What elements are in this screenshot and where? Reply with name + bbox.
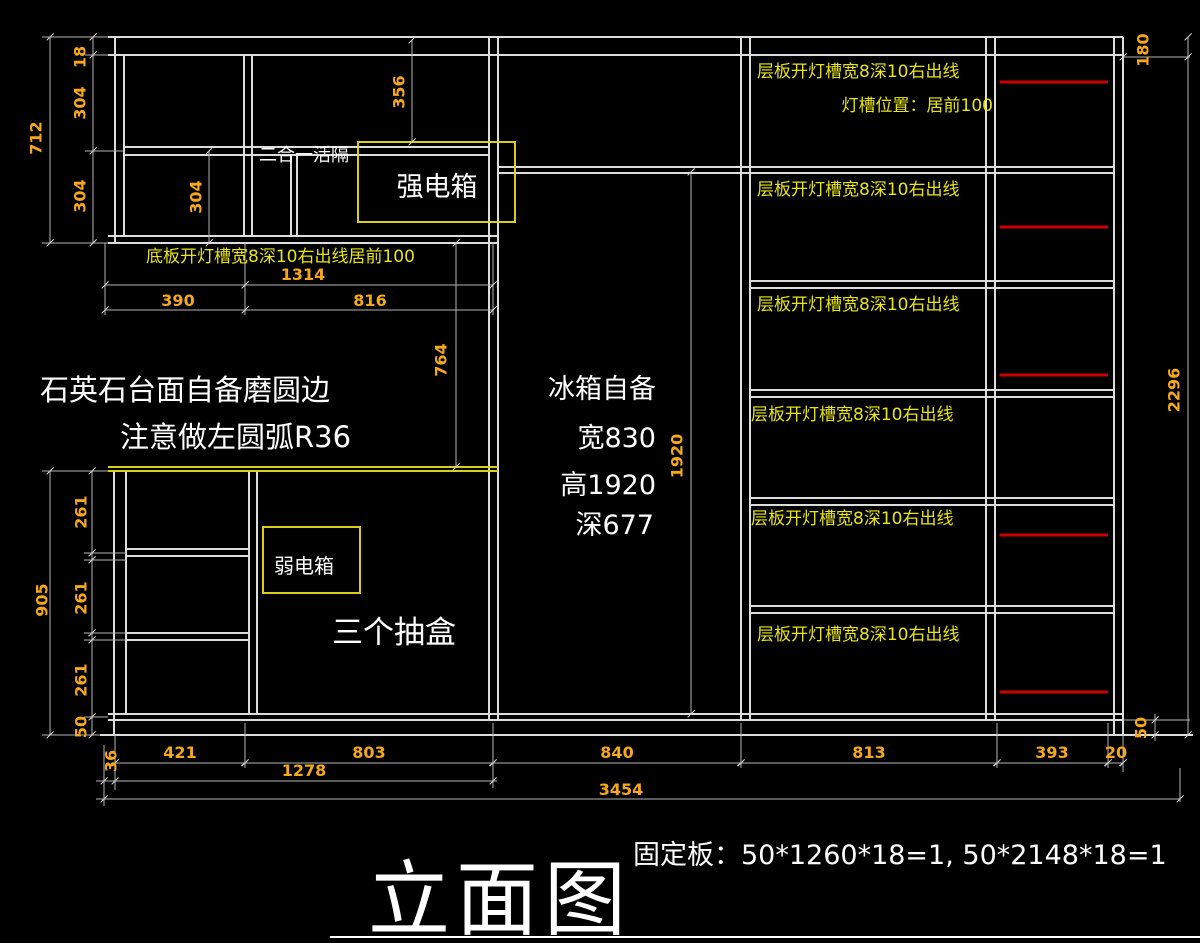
dimension-labels: 712 18 304 304 304 356 764 1920 905 261 … [27,33,1184,799]
shelf-light-note-6: 层板开灯槽宽8深10右出线 [757,625,959,645]
dim-304-c: 304 [187,180,206,213]
dim-840: 840 [600,743,633,762]
drawers-note: 三个抽盒 [332,615,456,651]
combo-divider-note: 二合一活隔 [259,145,349,166]
countertop-note-line1: 石英石台面自备磨圆边 [40,373,330,407]
shelf-light-note-1: 层板开灯槽宽8深10右出线 [757,62,959,82]
fridge-note-line1: 冰箱自备 [548,374,656,405]
cad-elevation-canvas: 712 18 304 304 304 356 764 1920 905 261 … [0,0,1200,943]
dim-356: 356 [390,75,409,108]
dim-803: 803 [352,743,385,762]
shelf-light-note-2: 层板开灯槽宽8深10右出线 [757,180,959,200]
shelf-light-note-3: 层板开灯槽宽8深10右出线 [757,295,959,315]
dim-3454: 3454 [599,780,644,799]
dim-50-left: 50 [72,716,91,738]
weak-electric-box-label: 弱电箱 [274,554,334,578]
countertop-line [108,467,498,471]
countertop-note-line2: 注意做左圆弧R36 [120,420,351,454]
fridge-note-line4: 深677 [575,510,654,541]
dim-261-c: 261 [72,663,91,696]
dim-36: 36 [102,750,121,772]
dim-20: 20 [1105,743,1127,762]
dim-50-right: 50 [1132,717,1151,739]
dim-764: 764 [432,343,451,376]
drawing-title: 立面图 [368,853,632,943]
light-slot-position-note: 灯槽位置：居前100 [842,96,993,116]
dim-1920: 1920 [668,434,687,479]
dim-421: 421 [163,743,196,762]
elevation-drawing: 712 18 304 304 304 356 764 1920 905 261 … [0,0,1200,943]
dim-816: 816 [353,291,386,310]
dim-261-a: 261 [72,495,91,528]
dim-393: 393 [1035,743,1068,762]
bottom-light-slot-note: 底板开灯槽宽8深10右出线居前100 [146,247,415,267]
dim-813: 813 [852,743,885,762]
dim-905: 905 [33,583,52,616]
fridge-note-line3: 高1920 [560,470,656,501]
fixed-board-note: 固定板：50*1260*18=1, 50*2148*18=1 [633,840,1167,871]
dim-712: 712 [27,121,46,154]
fridge-note-line2: 宽830 [577,423,656,454]
dim-1314: 1314 [281,265,326,284]
dim-1278: 1278 [282,761,327,780]
strong-electric-box-label: 强电箱 [397,172,478,203]
dim-304-b: 304 [71,179,90,212]
dim-261-b: 261 [72,581,91,614]
shelf-light-note-4: 层板开灯槽宽8深10右出线 [751,405,953,425]
dimension-tick-marks [47,34,1192,803]
dim-390: 390 [161,291,194,310]
dim-2296: 2296 [1165,368,1184,413]
shelf-light-note-5: 层板开灯槽宽8深10右出线 [751,509,953,529]
dim-304-a: 304 [71,86,90,119]
dim-18: 18 [71,46,90,68]
dim-180: 180 [1134,33,1153,66]
